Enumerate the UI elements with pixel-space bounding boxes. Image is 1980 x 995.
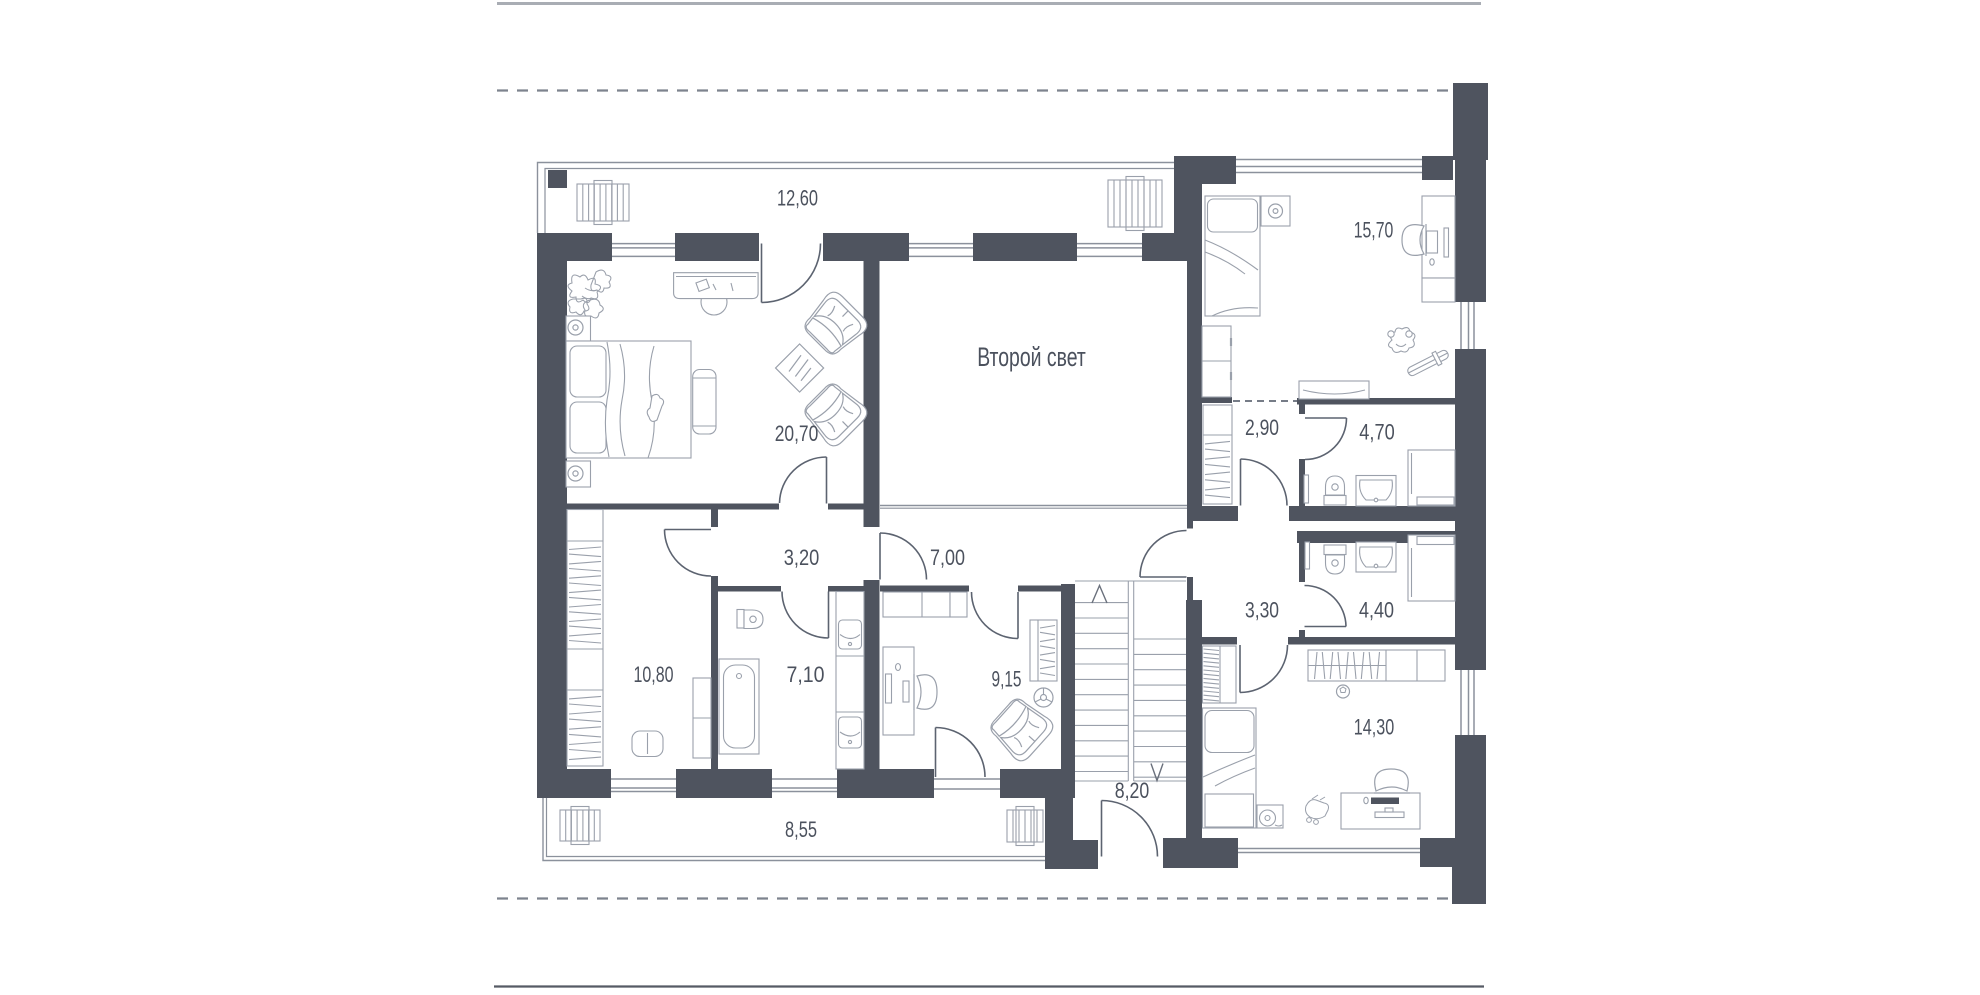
svg-text:2,90: 2,90 [1245, 415, 1279, 440]
svg-text:3,30: 3,30 [1245, 598, 1279, 623]
svg-text:10,80: 10,80 [634, 662, 674, 687]
svg-text:4,40: 4,40 [1359, 598, 1394, 623]
svg-text:4,70: 4,70 [1359, 420, 1394, 445]
svg-text:12,60: 12,60 [777, 186, 818, 211]
svg-text:7,00: 7,00 [930, 545, 965, 570]
svg-text:20,70: 20,70 [775, 421, 819, 446]
svg-text:Второй свет: Второй свет [977, 342, 1086, 372]
svg-text:8,20: 8,20 [1115, 778, 1150, 803]
svg-text:15,70: 15,70 [1354, 218, 1394, 243]
svg-text:9,15: 9,15 [992, 667, 1022, 692]
svg-text:8,55: 8,55 [785, 817, 817, 842]
svg-text:7,10: 7,10 [787, 662, 825, 687]
svg-text:3,20: 3,20 [784, 545, 820, 570]
svg-text:14,30: 14,30 [1354, 715, 1394, 740]
